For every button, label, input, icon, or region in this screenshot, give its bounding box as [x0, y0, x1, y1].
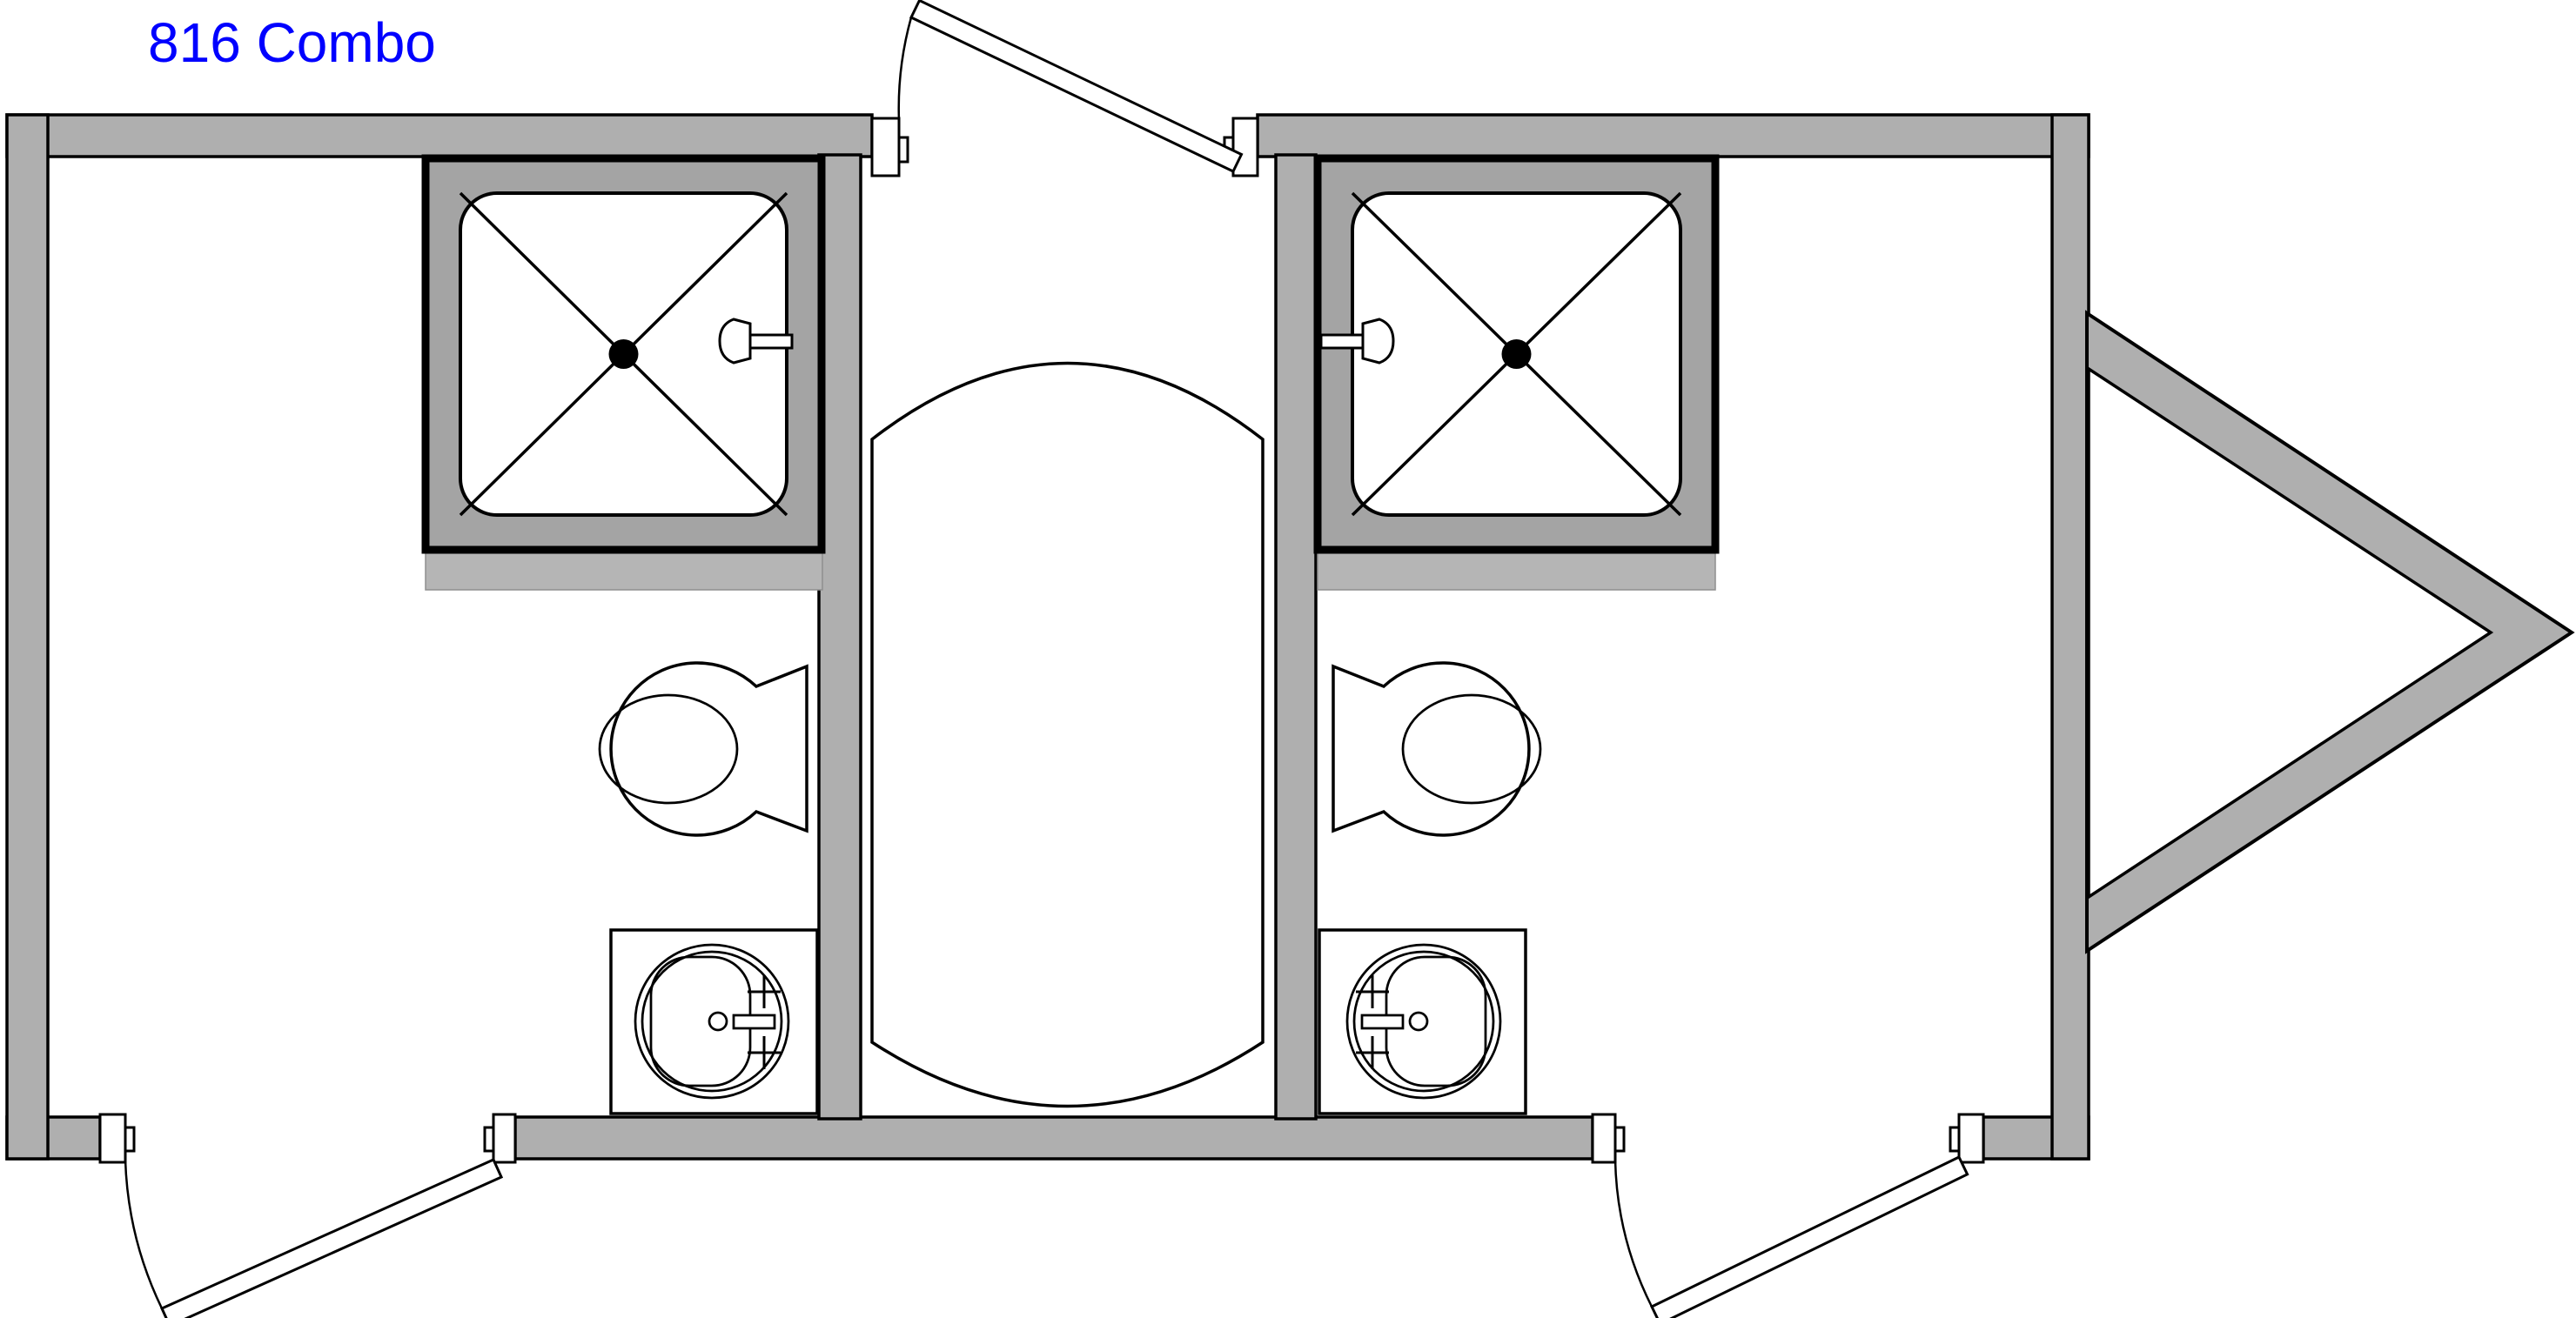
hitch-tongue [2087, 313, 2572, 951]
bottom-left-door-leaf [162, 1160, 501, 1318]
left-shower-platform [426, 550, 822, 590]
top-door-right-jamb [1233, 118, 1258, 176]
top-wall-left-segment [7, 115, 872, 157]
right-shower-drain-icon [1502, 339, 1532, 369]
top-center-door [872, 1, 1258, 177]
right-wall [2052, 115, 2089, 1159]
right-sink [1319, 930, 1526, 1114]
left-toilet [600, 663, 807, 835]
bottom-left-door [100, 1114, 515, 1318]
right-toilet [1333, 663, 1540, 835]
top-door-leaf [911, 1, 1242, 172]
left-shower-handle-icon [720, 319, 750, 363]
bottom-right-door [1593, 1114, 1983, 1318]
right-sink-drain-icon [1410, 1013, 1427, 1030]
left-shower-valve-stem [750, 335, 792, 348]
bottom-right-door-leaf [1652, 1157, 1968, 1318]
left-shower-stall [426, 158, 822, 550]
left-shower-drain-icon [609, 339, 639, 369]
right-shower-stall [1318, 158, 1715, 550]
bottom-left-door-swing-arc [125, 1160, 162, 1308]
bottom-left-door-right-jamb [493, 1114, 515, 1162]
bottom-right-door-swing-arc [1615, 1160, 1652, 1307]
bottom-right-door-left-jamb [1593, 1114, 1615, 1162]
bottom-left-door-left-jamb-stop [125, 1127, 134, 1151]
left-sink [611, 930, 817, 1114]
bottom-wall-center-segment [515, 1117, 1593, 1159]
top-wall-right-segment [1258, 115, 2089, 157]
left-sink-drain-icon [709, 1013, 727, 1030]
right-shower-platform [1318, 550, 1715, 590]
top-door-left-jamb-stop [899, 137, 908, 162]
right-toilet-bowl [1333, 663, 1529, 835]
bottom-right-door-right-jamb [1959, 1114, 1983, 1162]
right-partition-wall [1276, 155, 1316, 1119]
left-wall [7, 115, 48, 1159]
left-sink-faucet [734, 1015, 775, 1028]
right-shower-handle-icon [1363, 319, 1393, 363]
floor-plan-drawing [0, 0, 2576, 1318]
right-sink-faucet [1362, 1015, 1403, 1028]
water-tank [872, 364, 1263, 1107]
bottom-left-door-left-jamb [100, 1114, 125, 1162]
top-door-left-jamb [872, 118, 899, 176]
bottom-right-door-right-jamb-stop [1950, 1127, 1959, 1151]
bottom-left-door-right-jamb-stop [485, 1127, 493, 1151]
floor-plan: 816 Combo [0, 0, 2576, 1318]
bottom-right-door-left-jamb-stop [1615, 1127, 1624, 1151]
top-door-swing-arc [899, 17, 911, 121]
left-toilet-bowl [611, 663, 807, 835]
right-shower-valve-stem [1321, 335, 1363, 348]
